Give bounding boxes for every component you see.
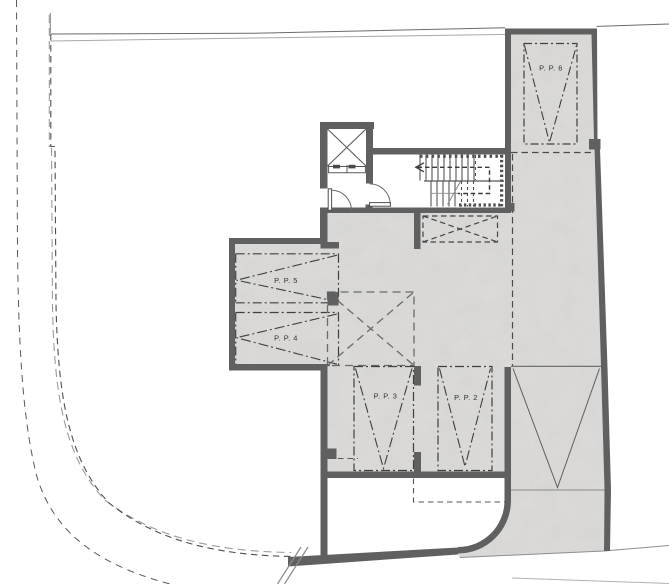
svg-text:P. P. 3: P. P. 3 [374, 392, 398, 401]
svg-text:P. P. 2: P. P. 2 [454, 393, 478, 402]
svg-text:P. P. 4: P. P. 4 [274, 334, 298, 343]
svg-text:P. P. 6: P. P. 6 [539, 64, 563, 73]
svg-text:P. P. 5: P. P. 5 [274, 276, 298, 285]
